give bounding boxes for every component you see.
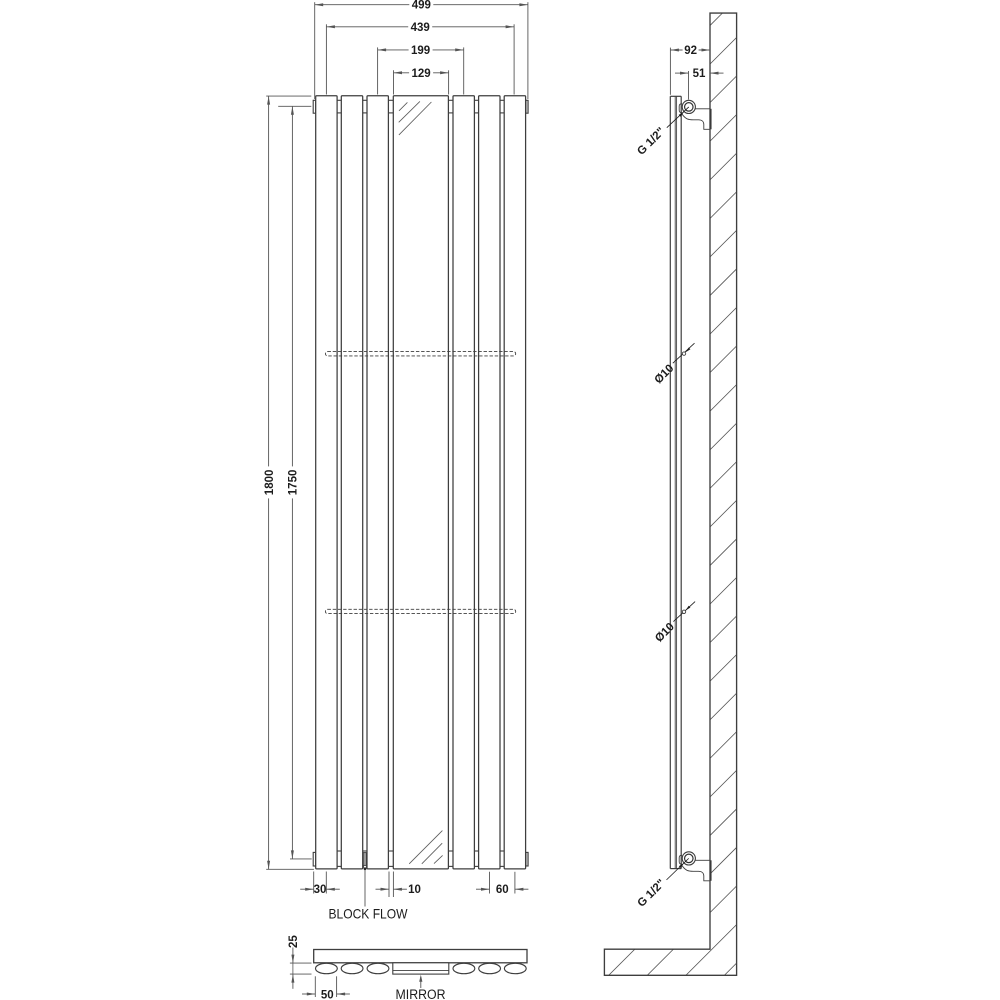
svg-text:10: 10 (408, 884, 421, 896)
svg-text:1750: 1750 (288, 470, 300, 496)
svg-text:25: 25 (288, 935, 300, 948)
svg-text:MIRROR: MIRROR (396, 987, 446, 1000)
svg-text:199: 199 (411, 45, 430, 57)
svg-text:1800: 1800 (264, 470, 276, 496)
svg-text:499: 499 (412, 0, 431, 12)
svg-text:51: 51 (693, 68, 706, 80)
svg-text:92: 92 (684, 45, 697, 57)
svg-text:BLOCK FLOW: BLOCK FLOW (329, 905, 409, 921)
svg-text:30: 30 (314, 884, 327, 896)
svg-text:60: 60 (496, 884, 509, 896)
svg-text:129: 129 (412, 68, 431, 80)
svg-text:439: 439 (411, 22, 430, 34)
svg-text:50: 50 (321, 989, 334, 1000)
